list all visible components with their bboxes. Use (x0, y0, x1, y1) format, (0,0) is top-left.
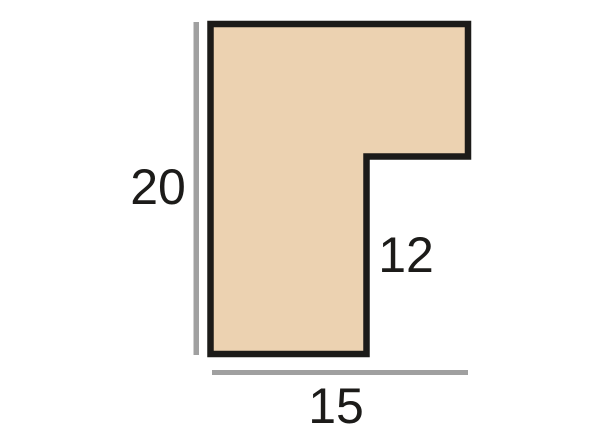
profile-drawing (0, 0, 600, 444)
width-dimension-label: 15 (308, 381, 364, 431)
height-dimension-label: 20 (130, 162, 186, 212)
height-dimension-line (194, 22, 200, 355)
width-dimension-line (212, 370, 468, 375)
moulding-profile-shape (211, 24, 469, 354)
rebate-dimension-label: 12 (378, 230, 434, 280)
moulding-diagram-canvas: 20 12 15 (0, 0, 600, 444)
